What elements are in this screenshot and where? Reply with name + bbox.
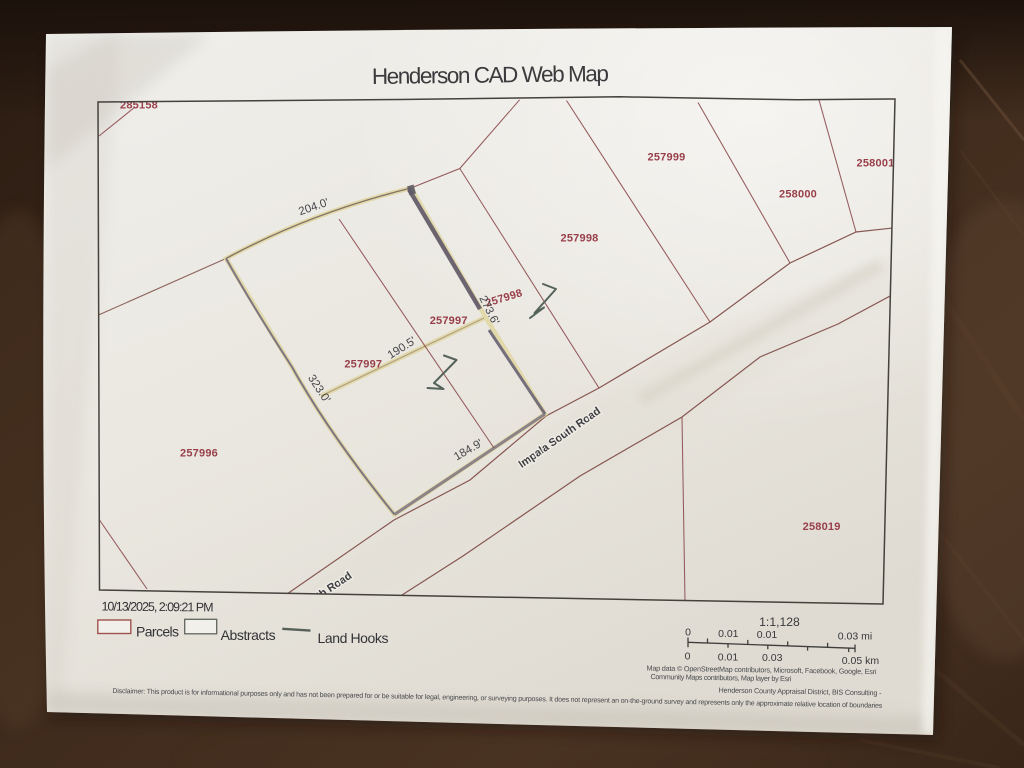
- svg-text:Abstracts: Abstracts: [221, 627, 276, 643]
- svg-text:10/13/2025, 2:09:21 PM: 10/13/2025, 2:09:21 PM: [101, 600, 213, 615]
- svg-text:258000: 258000: [779, 189, 817, 201]
- svg-text:257999: 257999: [648, 152, 686, 164]
- svg-text:0.01: 0.01: [718, 652, 739, 664]
- svg-text:Henderson CAD Web Map: Henderson CAD Web Map: [372, 61, 609, 89]
- svg-text:1:1,128: 1:1,128: [759, 615, 800, 629]
- svg-text:0: 0: [685, 627, 691, 639]
- svg-text:0.03: 0.03: [762, 652, 783, 664]
- svg-text:257998: 257998: [561, 233, 599, 245]
- svg-text:Parcels: Parcels: [136, 624, 179, 640]
- svg-text:0.01: 0.01: [718, 628, 739, 640]
- svg-text:257997: 257997: [430, 315, 468, 327]
- svg-text:Land Hooks: Land Hooks: [318, 630, 389, 646]
- svg-text:0.05 km: 0.05 km: [842, 655, 880, 667]
- svg-text:0.03 mi: 0.03 mi: [838, 631, 872, 643]
- svg-text:0.01: 0.01: [757, 629, 778, 641]
- svg-text:257996: 257996: [180, 447, 218, 459]
- svg-text:258019: 258019: [803, 521, 841, 533]
- svg-text:257997: 257997: [344, 359, 382, 371]
- svg-text:0: 0: [685, 651, 691, 663]
- svg-text:258001: 258001: [857, 158, 895, 170]
